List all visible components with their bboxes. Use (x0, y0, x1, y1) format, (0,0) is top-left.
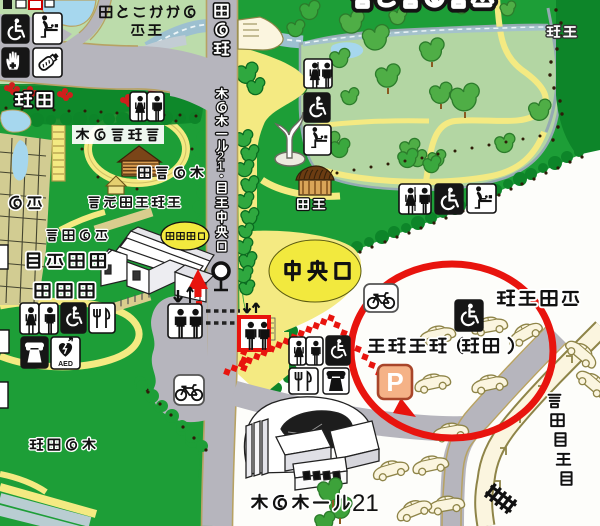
svg-text:AED: AED (58, 361, 73, 368)
svg-text:P: P (386, 367, 403, 397)
svg-text:21: 21 (352, 490, 379, 517)
svg-text:1: 1 (217, 159, 224, 174)
